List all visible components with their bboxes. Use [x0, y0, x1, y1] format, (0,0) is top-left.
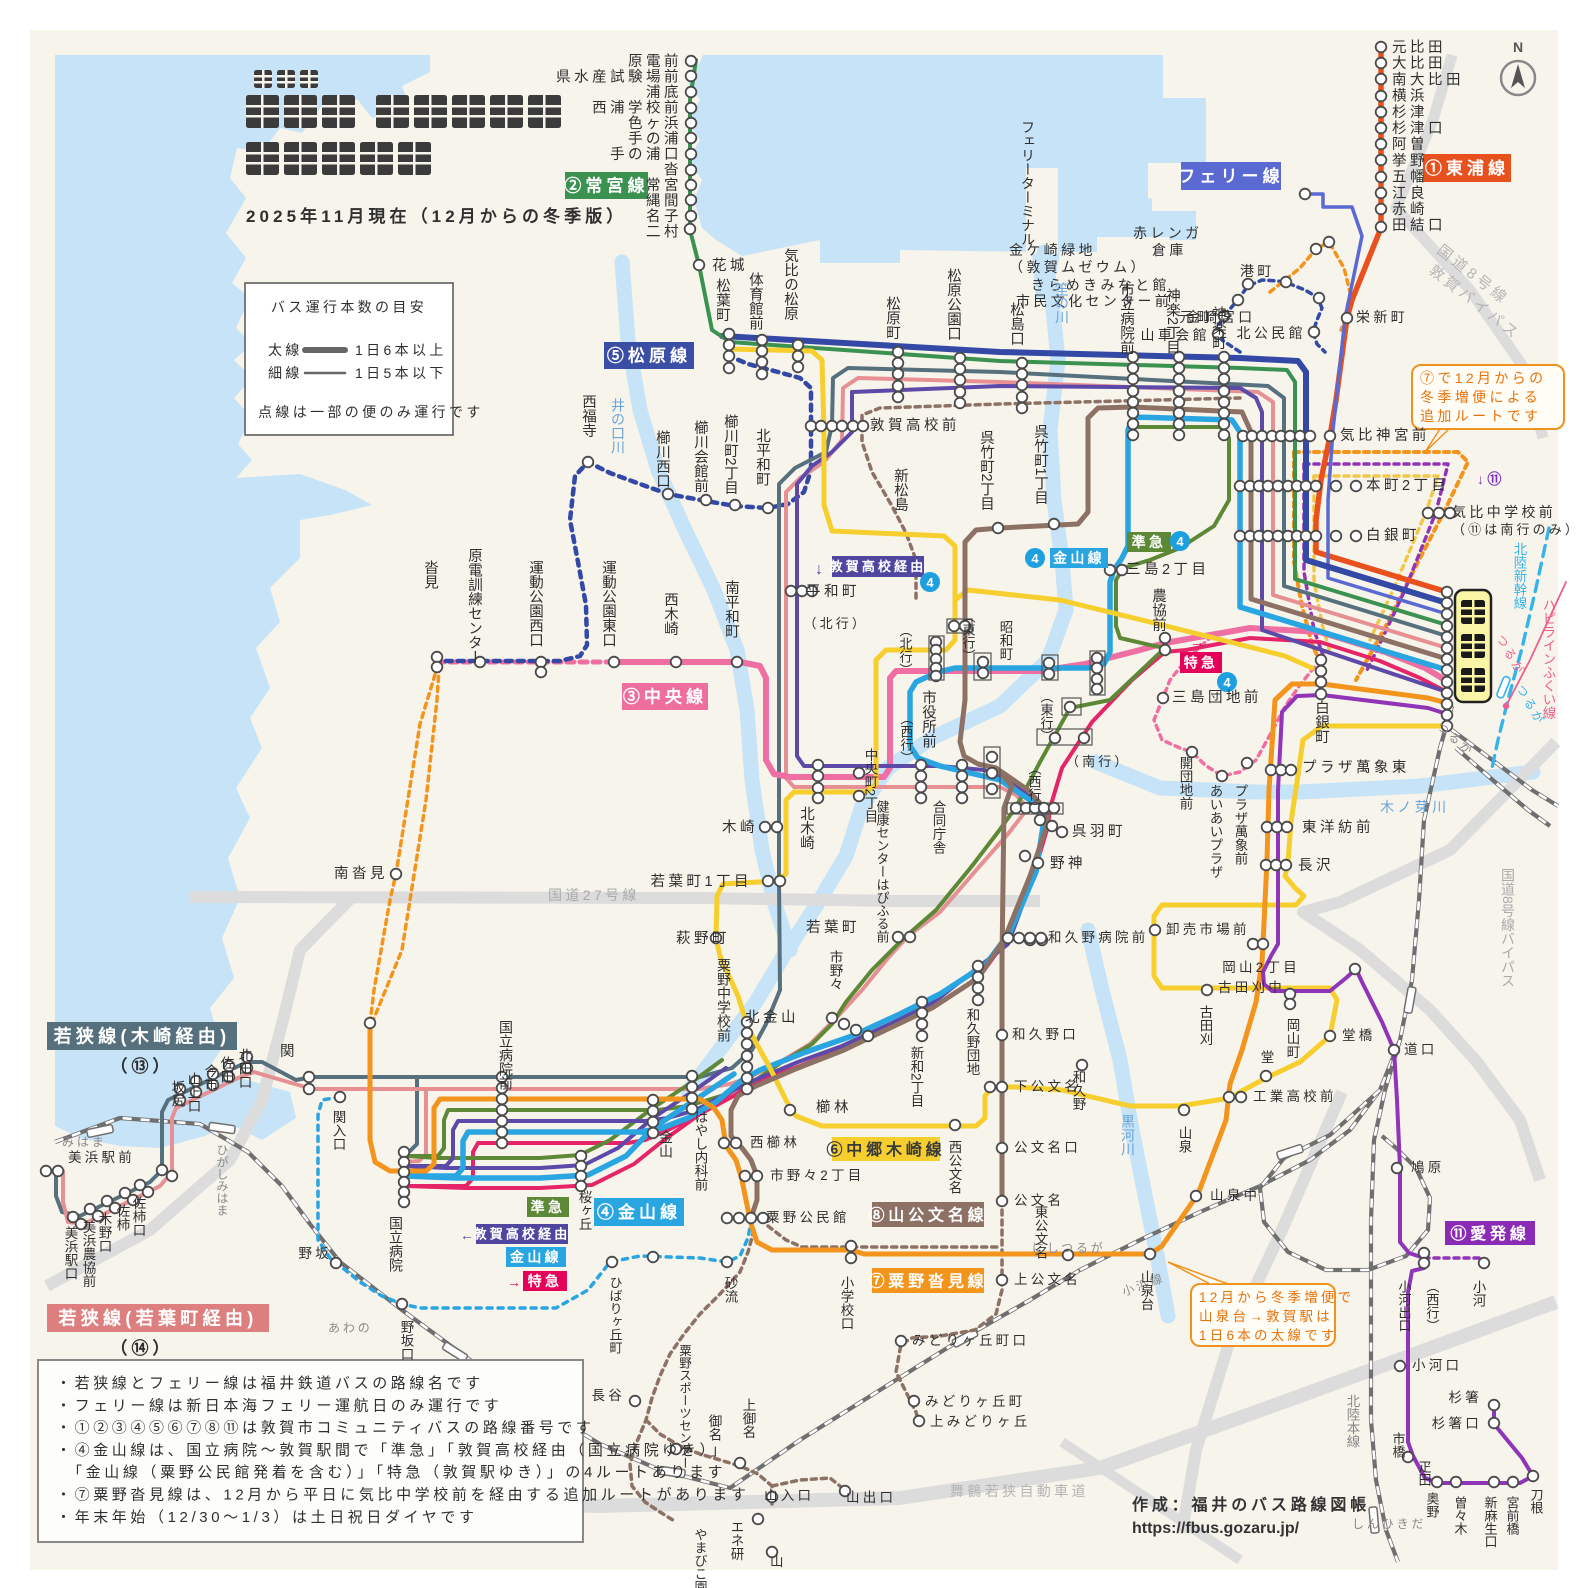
svg-text:ひばりヶ丘町: ひばりヶ丘町: [608, 1276, 623, 1354]
svg-text:浦底: 浦底: [646, 84, 682, 101]
svg-text:堂: 堂: [1259, 1050, 1275, 1064]
svg-text:山泉中: 山泉中: [1210, 1187, 1260, 1203]
svg-text:長沢: 長沢: [1298, 857, 1334, 874]
svg-text:和久野口: 和久野口: [1012, 1027, 1079, 1042]
svg-text:粟野スポーツセンター: 粟野スポーツセンター: [677, 1344, 691, 1469]
svg-text:←: ←: [460, 1227, 477, 1243]
svg-text:舞鶴若狭自動車道: 舞鶴若狭自動車道: [950, 1483, 1089, 1499]
svg-text:「金山線（粟野公民館発着を含む）」「特急（敦賀駅ゆき）」の4: 「金山線（粟野公民館発着を含む）」「特急（敦賀駅ゆき）」の4ルートあります: [56, 1464, 726, 1481]
svg-text:西櫛林: 西櫛林: [750, 1135, 800, 1150]
svg-text:冬季増便による: 冬季増便による: [1420, 389, 1541, 405]
svg-text:櫛林: 櫛林: [816, 1098, 852, 1116]
svg-text:東洋紡前: 東洋紡前: [1302, 819, 1374, 836]
svg-text:市野々: 市野々: [828, 949, 844, 991]
svg-text:（北行）: （北行）: [804, 616, 868, 631]
svg-text:金山: 金山: [658, 1130, 674, 1158]
svg-text:野坂: 野坂: [299, 1246, 332, 1261]
svg-text:沓見: 沓見: [422, 560, 438, 591]
svg-text:にしつるが: にしつるが: [1032, 1240, 1106, 1255]
svg-text:（⑬）: （⑬）: [110, 1056, 173, 1076]
svg-text:櫛川会館前: 櫛川会館前: [692, 419, 708, 494]
svg-text:フェリー線: フェリー線: [1178, 166, 1283, 186]
svg-text:江良: 江良: [1392, 185, 1428, 202]
svg-text:野神: 野神: [1050, 855, 1086, 872]
svg-text:市橋: 市橋: [1391, 1431, 1406, 1459]
svg-text:道口: 道口: [1404, 1042, 1437, 1057]
svg-text:黒河川: 黒河川: [1120, 1114, 1136, 1156]
svg-text:田結口: 田結口: [1392, 217, 1446, 234]
svg-text:関入口: 関入口: [331, 1110, 347, 1151]
svg-text:運動公園西口: 運動公園西口: [527, 560, 543, 647]
svg-text:国立病院: 国立病院: [388, 1216, 404, 1273]
svg-text:2025年11月現在（12月からの冬季版）: 2025年11月現在（12月からの冬季版）: [246, 206, 627, 226]
svg-text:和久野団地: 和久野団地: [965, 1008, 981, 1076]
svg-text:特急: 特急: [1184, 655, 1219, 671]
svg-text:④金山線: ④金山線: [597, 1202, 681, 1222]
svg-text:粟野中学校前: 粟野中学校前: [716, 958, 732, 1043]
svg-text:砂流: 砂流: [723, 1276, 739, 1304]
svg-text:松葉町: 松葉町: [714, 278, 730, 322]
svg-text:木野口: 木野口: [97, 1212, 113, 1253]
svg-text:市民文化センター前: 市民文化センター前: [1016, 293, 1172, 309]
svg-text:③中央線: ③中央線: [623, 687, 707, 707]
svg-text:今市: 今市: [203, 1064, 219, 1092]
svg-text:金山線: 金山線: [1052, 550, 1105, 566]
svg-text:4: 4: [1223, 675, 1231, 690]
svg-text:手の浦: 手の浦: [628, 131, 682, 148]
svg-text:追加ルートです: 追加ルートです: [1420, 408, 1542, 424]
svg-text:佐柿口: 佐柿口: [131, 1196, 147, 1237]
svg-text:特急: 特急: [528, 1273, 563, 1289]
svg-text:木崎: 木崎: [722, 819, 758, 836]
svg-text:やまびこ園: やまびこ園: [693, 1528, 708, 1588]
svg-text:平和町: 平和町: [806, 583, 860, 600]
svg-text:市役所前: 市役所前: [920, 690, 936, 750]
svg-text:ハピラインふくい線: ハピラインふくい線: [1541, 598, 1557, 720]
svg-text:農協前: 農協前: [1150, 588, 1166, 633]
svg-text:あいあいプラザ: あいあいプラザ: [1208, 784, 1224, 879]
svg-text:大比田: 大比田: [1392, 55, 1446, 72]
svg-text:松原公園口: 松原公園口: [945, 268, 961, 341]
svg-text:山泉台→敦賀駅は: 山泉台→敦賀駅は: [1199, 1308, 1333, 1324]
svg-text:山: 山: [770, 1554, 787, 1569]
svg-text:沓: 沓: [664, 162, 682, 179]
svg-text:笙の川: 笙の川: [1054, 282, 1070, 324]
svg-text:はやし内科前: はやし内科前: [693, 1110, 709, 1191]
svg-text:名子: 名子: [646, 208, 682, 225]
svg-text:プラザ萬象東: プラザ萬象東: [1302, 759, 1410, 776]
svg-text:長谷: 長谷: [592, 1388, 625, 1403]
svg-text:上御名: 上御名: [741, 1398, 757, 1439]
svg-text:若葉町: 若葉町: [806, 919, 860, 936]
svg-text:北田口: 北田口: [237, 1048, 253, 1089]
svg-text:気比の松原: 気比の松原: [782, 248, 798, 321]
svg-text:②常宮線: ②常宮線: [564, 176, 648, 196]
svg-text:新和2丁目: 新和2丁目: [909, 1046, 925, 1108]
svg-text:岡山2丁目: 岡山2丁目: [1222, 960, 1300, 975]
svg-text:（西行）: （西行）: [899, 712, 914, 764]
svg-text:佐田: 佐田: [219, 1056, 235, 1084]
svg-text:（⑪は南行のみ）: （⑪は南行のみ）: [1452, 522, 1581, 537]
svg-text:小河: 小河: [1471, 1280, 1487, 1308]
svg-text:小河口: 小河口: [1412, 1358, 1462, 1373]
svg-text:上みどりヶ丘: 上みどりヶ丘: [930, 1414, 1030, 1429]
svg-text:横浜: 横浜: [1392, 88, 1428, 105]
svg-text:佐柿: 佐柿: [115, 1204, 131, 1232]
svg-text:下公文名: 下公文名: [1014, 1079, 1081, 1094]
svg-text:呉竹町2丁目: 呉竹町2丁目: [978, 430, 994, 511]
svg-text:きらめきみなと館: きらめきみなと館: [1031, 277, 1170, 293]
svg-text:疋田: 疋田: [1417, 1460, 1432, 1486]
svg-text:新松島: 新松島: [892, 468, 908, 512]
svg-text:美浜駅口: 美浜駅口: [63, 1226, 79, 1281]
svg-text:敦賀高校経由: 敦賀高校経由: [474, 1227, 571, 1242]
svg-text:北平和町: 北平和町: [754, 428, 770, 487]
svg-text:北公民館: 北公民館: [1237, 325, 1306, 341]
svg-text:北陸新幹線: 北陸新幹線: [1512, 542, 1528, 610]
svg-text:北陸本線: 北陸本線: [1345, 1394, 1361, 1449]
svg-text:美浜農協前: 美浜農協前: [81, 1220, 97, 1288]
svg-text:美浜駅前: 美浜駅前: [68, 1149, 135, 1165]
svg-text:みどりヶ丘町: みどりヶ丘町: [925, 1394, 1025, 1409]
svg-text:国立病院前: 国立病院前: [498, 1020, 514, 1091]
svg-text:若葉町1丁目: 若葉町1丁目: [651, 873, 752, 890]
svg-text:点線は一部の便のみ運行です: 点線は一部の便のみ運行です: [258, 404, 484, 420]
svg-text:準急: 準急: [531, 1199, 566, 1215]
svg-text:栄新町: 栄新町: [1356, 309, 1408, 325]
svg-text:南沓見: 南沓見: [334, 865, 388, 882]
svg-text:西公文名: 西公文名: [947, 1140, 963, 1194]
svg-text:・④金山線は、国立病院〜敦賀駅間で「準急」「敦賀高校経由（国: ・④金山線は、国立病院〜敦賀駅間で「準急」「敦賀高校経由（国立病院ゆき）」: [56, 1441, 729, 1459]
svg-text:↓: ↓: [815, 561, 827, 578]
svg-text:https://fbus.gozaru.jp/: https://fbus.gozaru.jp/: [1132, 1520, 1300, 1537]
svg-text:赤レンガ: 赤レンガ: [1133, 225, 1202, 241]
svg-text:みはま: みはま: [62, 1135, 107, 1149]
svg-text:色ヶ浜: 色ヶ浜: [628, 115, 682, 132]
svg-text:杉津: 杉津: [1392, 104, 1428, 121]
svg-text:北金山: 北金山: [745, 1009, 799, 1026]
svg-text:（西行）: （西行）: [1027, 762, 1042, 814]
svg-text:4: 4: [1176, 534, 1184, 549]
svg-text:⑦粟野沓見線: ⑦粟野沓見線: [868, 1271, 987, 1290]
svg-text:国道8号線バイパス: 国道8号線バイパス: [1500, 868, 1516, 988]
svg-text:山上口: 山上口: [186, 1072, 202, 1113]
svg-text:準急: 準急: [1132, 534, 1167, 550]
svg-text:木ノ芽川: 木ノ芽川: [1380, 799, 1449, 815]
svg-text:奥野: 奥野: [1425, 1492, 1440, 1518]
svg-text:若狭線(若葉町経由): 若狭線(若葉町経由): [57, 1307, 257, 1328]
svg-text:山車会館: 山車会館: [1141, 327, 1210, 343]
svg-text:二村: 二村: [646, 224, 682, 241]
svg-text:あわの: あわの: [328, 1321, 373, 1335]
svg-text:敦賀高校経由: 敦賀高校経由: [830, 559, 927, 574]
svg-text:元比田: 元比田: [1392, 39, 1446, 56]
svg-text:中央町2丁目: 中央町2丁目: [863, 748, 879, 824]
svg-text:曽々木: 曽々木: [1453, 1496, 1468, 1535]
svg-text:バス運行本数の目安: バス運行本数の目安: [271, 299, 427, 315]
svg-text:気比神宮前: 気比神宮前: [1340, 427, 1430, 444]
svg-text:西福寺: 西福寺: [580, 394, 596, 438]
svg-text:北木崎: 北木崎: [798, 806, 814, 850]
svg-text:4: 4: [1031, 551, 1039, 566]
svg-text:・年末年始（12/30〜1/3）は土日祝日ダイヤです: ・年末年始（12/30〜1/3）は土日祝日ダイヤです: [56, 1509, 478, 1526]
svg-text:港町: 港町: [1240, 263, 1275, 279]
svg-text:挙野: 挙野: [1392, 152, 1428, 169]
svg-text:粟野公民館: 粟野公民館: [766, 1210, 850, 1225]
svg-text:堂橋: 堂橋: [1342, 1028, 1375, 1043]
svg-text:卸売市場前: 卸売市場前: [1166, 921, 1250, 937]
svg-text:小河出口: 小河出口: [1397, 1280, 1412, 1332]
svg-text:⑧山公文名線: ⑧山公文名線: [868, 1205, 987, 1224]
svg-text:和久野病院前: 和久野病院前: [1048, 929, 1148, 945]
svg-text:敦賀高校前: 敦賀高校前: [870, 417, 960, 434]
svg-text:井の口川: 井の口川: [610, 398, 626, 454]
svg-text:⑤松原線: ⑤松原線: [607, 346, 691, 366]
svg-text:体育館前: 体育館前: [747, 272, 763, 332]
svg-text:杉津口: 杉津口: [1392, 120, 1446, 137]
svg-text:↓⑪: ↓⑪: [1477, 471, 1505, 487]
svg-text:上公文名: 上公文名: [1014, 1272, 1081, 1287]
svg-text:萩野町: 萩野町: [676, 930, 730, 947]
svg-text:本町2丁目: 本町2丁目: [1366, 477, 1449, 494]
svg-text:杉箸口: 杉箸口: [1432, 1415, 1482, 1431]
svg-text:山出口: 山出口: [846, 1490, 896, 1505]
svg-text:倉庫: 倉庫: [1152, 242, 1187, 258]
svg-text:4: 4: [926, 575, 934, 590]
svg-text:N: N: [1513, 39, 1523, 55]
svg-text:西木崎: 西木崎: [662, 592, 678, 636]
svg-text:宮前橋: 宮前橋: [1505, 1495, 1520, 1536]
svg-text:古田刈中: 古田刈中: [1218, 980, 1285, 995]
svg-text:市野々2丁目: 市野々2丁目: [770, 1167, 864, 1183]
svg-text:12月から冬季増便で: 12月から冬季増便で: [1199, 1290, 1354, 1305]
svg-text:三島2丁目: 三島2丁目: [1126, 561, 1209, 578]
svg-text:みどりヶ丘町口: みどりヶ丘町口: [912, 1333, 1029, 1348]
svg-text:エネ研: エネ研: [729, 1520, 745, 1561]
svg-text:金ケ崎緑地: 金ケ崎緑地: [1009, 242, 1096, 258]
svg-text:鳩原: 鳩原: [1411, 1160, 1444, 1175]
svg-text:⑪愛発線: ⑪愛発線: [1450, 1224, 1529, 1243]
svg-text:五幡: 五幡: [1392, 169, 1428, 186]
svg-text:（南行）: （南行）: [1066, 754, 1130, 769]
svg-text:⑦で12月からの: ⑦で12月からの: [1420, 370, 1546, 386]
svg-text:元町: 元町: [1179, 309, 1214, 325]
svg-text:工業高校前: 工業高校前: [1253, 1088, 1337, 1104]
svg-text:手の浦口: 手の浦口: [610, 146, 682, 163]
svg-text:野坂口: 野坂口: [399, 1320, 415, 1361]
svg-text:・若狭線とフェリー線は福井鉄道バスの路線名です: ・若狭線とフェリー線は福井鉄道バスの路線名です: [56, 1375, 484, 1392]
svg-text:若狭線(木崎経由): 若狭線(木崎経由): [53, 1025, 231, 1046]
svg-text:常宮: 常宮: [646, 177, 682, 194]
svg-text:赤崎: 赤崎: [1392, 201, 1428, 218]
svg-text:阿曽: 阿曽: [1392, 136, 1428, 153]
svg-text:（北行）: （北行）: [898, 624, 913, 676]
svg-text:小学校口: 小学校口: [839, 1276, 855, 1331]
svg-text:フェリーターミナル: フェリーターミナル: [1020, 120, 1036, 246]
svg-text:関: 関: [280, 1044, 298, 1060]
svg-text:南平和町: 南平和町: [723, 580, 739, 639]
svg-text:山泉: 山泉: [1177, 1126, 1193, 1154]
svg-text:南大比田: 南大比田: [1392, 71, 1464, 88]
svg-text:原電訓練センター: 原電訓練センター: [466, 548, 482, 664]
svg-text:白銀町: 白銀町: [1313, 700, 1329, 744]
svg-text:・①②③④⑤⑥⑦⑧⑪は敦賀市コミュニティバスの路線番号です: ・①②③④⑤⑥⑦⑧⑪は敦賀市コミュニティバスの路線番号です: [56, 1420, 595, 1437]
svg-text:①東浦線: ①東浦線: [1425, 158, 1509, 178]
svg-text:坂尻: 坂尻: [170, 1080, 186, 1109]
svg-text:作成：福井のバス路線図帳: 作成：福井のバス路線図帳: [1132, 1495, 1370, 1514]
svg-text:⑥中郷木崎線: ⑥中郷木崎線: [826, 1140, 945, 1159]
svg-text:御名: 御名: [707, 1414, 723, 1442]
svg-text:杉箸: 杉箸: [1449, 1389, 1482, 1405]
svg-text:呉竹町1丁目: 呉竹町1丁目: [1032, 424, 1048, 505]
svg-text:運動公園東口: 運動公園東口: [600, 560, 616, 647]
svg-text:桜ヶ丘: 桜ヶ丘: [577, 1190, 593, 1231]
svg-text:（西行）: （西行）: [1425, 1280, 1440, 1332]
svg-text:刀根: 刀根: [1529, 1488, 1544, 1514]
svg-text:プラザ萬象前: プラザ萬象前: [1233, 784, 1249, 866]
svg-text:・⑦粟野沓見線は、12月から平日に気比中学校前を経由する追加: ・⑦粟野沓見線は、12月から平日に気比中学校前を経由する追加ルートがあります: [56, 1487, 750, 1504]
svg-text:国道27号線: 国道27号線: [548, 887, 640, 903]
svg-text:1日6本の太線です: 1日6本の太線です: [1199, 1328, 1338, 1343]
svg-text:開団地前: 開団地前: [1178, 756, 1194, 810]
svg-text:櫛川町2丁目: 櫛川町2丁目: [722, 413, 738, 495]
svg-text:（敦賀ムゼウム）: （敦賀ムゼウム）: [1009, 259, 1148, 275]
svg-text:原電前: 原電前: [628, 53, 682, 70]
svg-text:三島団地前: 三島団地前: [1172, 689, 1262, 706]
svg-text:ひがしみはま: ひがしみはま: [215, 1144, 229, 1216]
svg-text:細線: 細線: [268, 365, 303, 381]
svg-text:しんひきだ: しんひきだ: [1352, 1517, 1426, 1531]
svg-text:1日6本以上: 1日6本以上: [355, 342, 447, 358]
svg-text:（東行）: （東行）: [961, 610, 976, 662]
svg-text:櫛川西口: 櫛川西口: [654, 429, 670, 489]
svg-text:縄間: 縄間: [646, 193, 682, 210]
svg-text:松原町: 松原町: [884, 296, 900, 340]
svg-text:→: →: [1190, 634, 1209, 651]
svg-text:昭和町: 昭和町: [998, 620, 1014, 661]
svg-text:・フェリー線は新日本海フェリー運航日のみ運行です: ・フェリー線は新日本海フェリー運航日のみ運行です: [56, 1397, 502, 1414]
svg-text:（⑭）: （⑭）: [110, 1338, 173, 1358]
svg-text:西浦学校前: 西浦学校前: [592, 100, 682, 117]
svg-text:呉羽町: 呉羽町: [1072, 824, 1126, 840]
svg-text:古田刈: 古田刈: [1198, 1005, 1214, 1046]
svg-text:金山線: 金山線: [509, 1249, 562, 1265]
svg-text:（東行）: （東行）: [1039, 690, 1054, 742]
svg-text:→: →: [507, 1274, 524, 1290]
svg-text:公文名口: 公文名口: [1014, 1140, 1081, 1155]
svg-text:白銀町: 白銀町: [1366, 527, 1420, 544]
svg-text:1日5本以下: 1日5本以下: [355, 365, 447, 381]
svg-text:岡山町: 岡山町: [1285, 1018, 1301, 1059]
svg-text:太線: 太線: [268, 342, 303, 358]
svg-text:山入口: 山入口: [764, 1488, 814, 1503]
svg-text:気比中学校前: 気比中学校前: [1452, 504, 1556, 520]
svg-text:県水産試験場前: 県水産試験場前: [556, 69, 682, 86]
svg-text:合同庁舎: 合同庁舎: [931, 800, 947, 855]
svg-text:新麻生口: 新麻生口: [1483, 1495, 1498, 1548]
svg-text:花城: 花城: [712, 257, 748, 274]
